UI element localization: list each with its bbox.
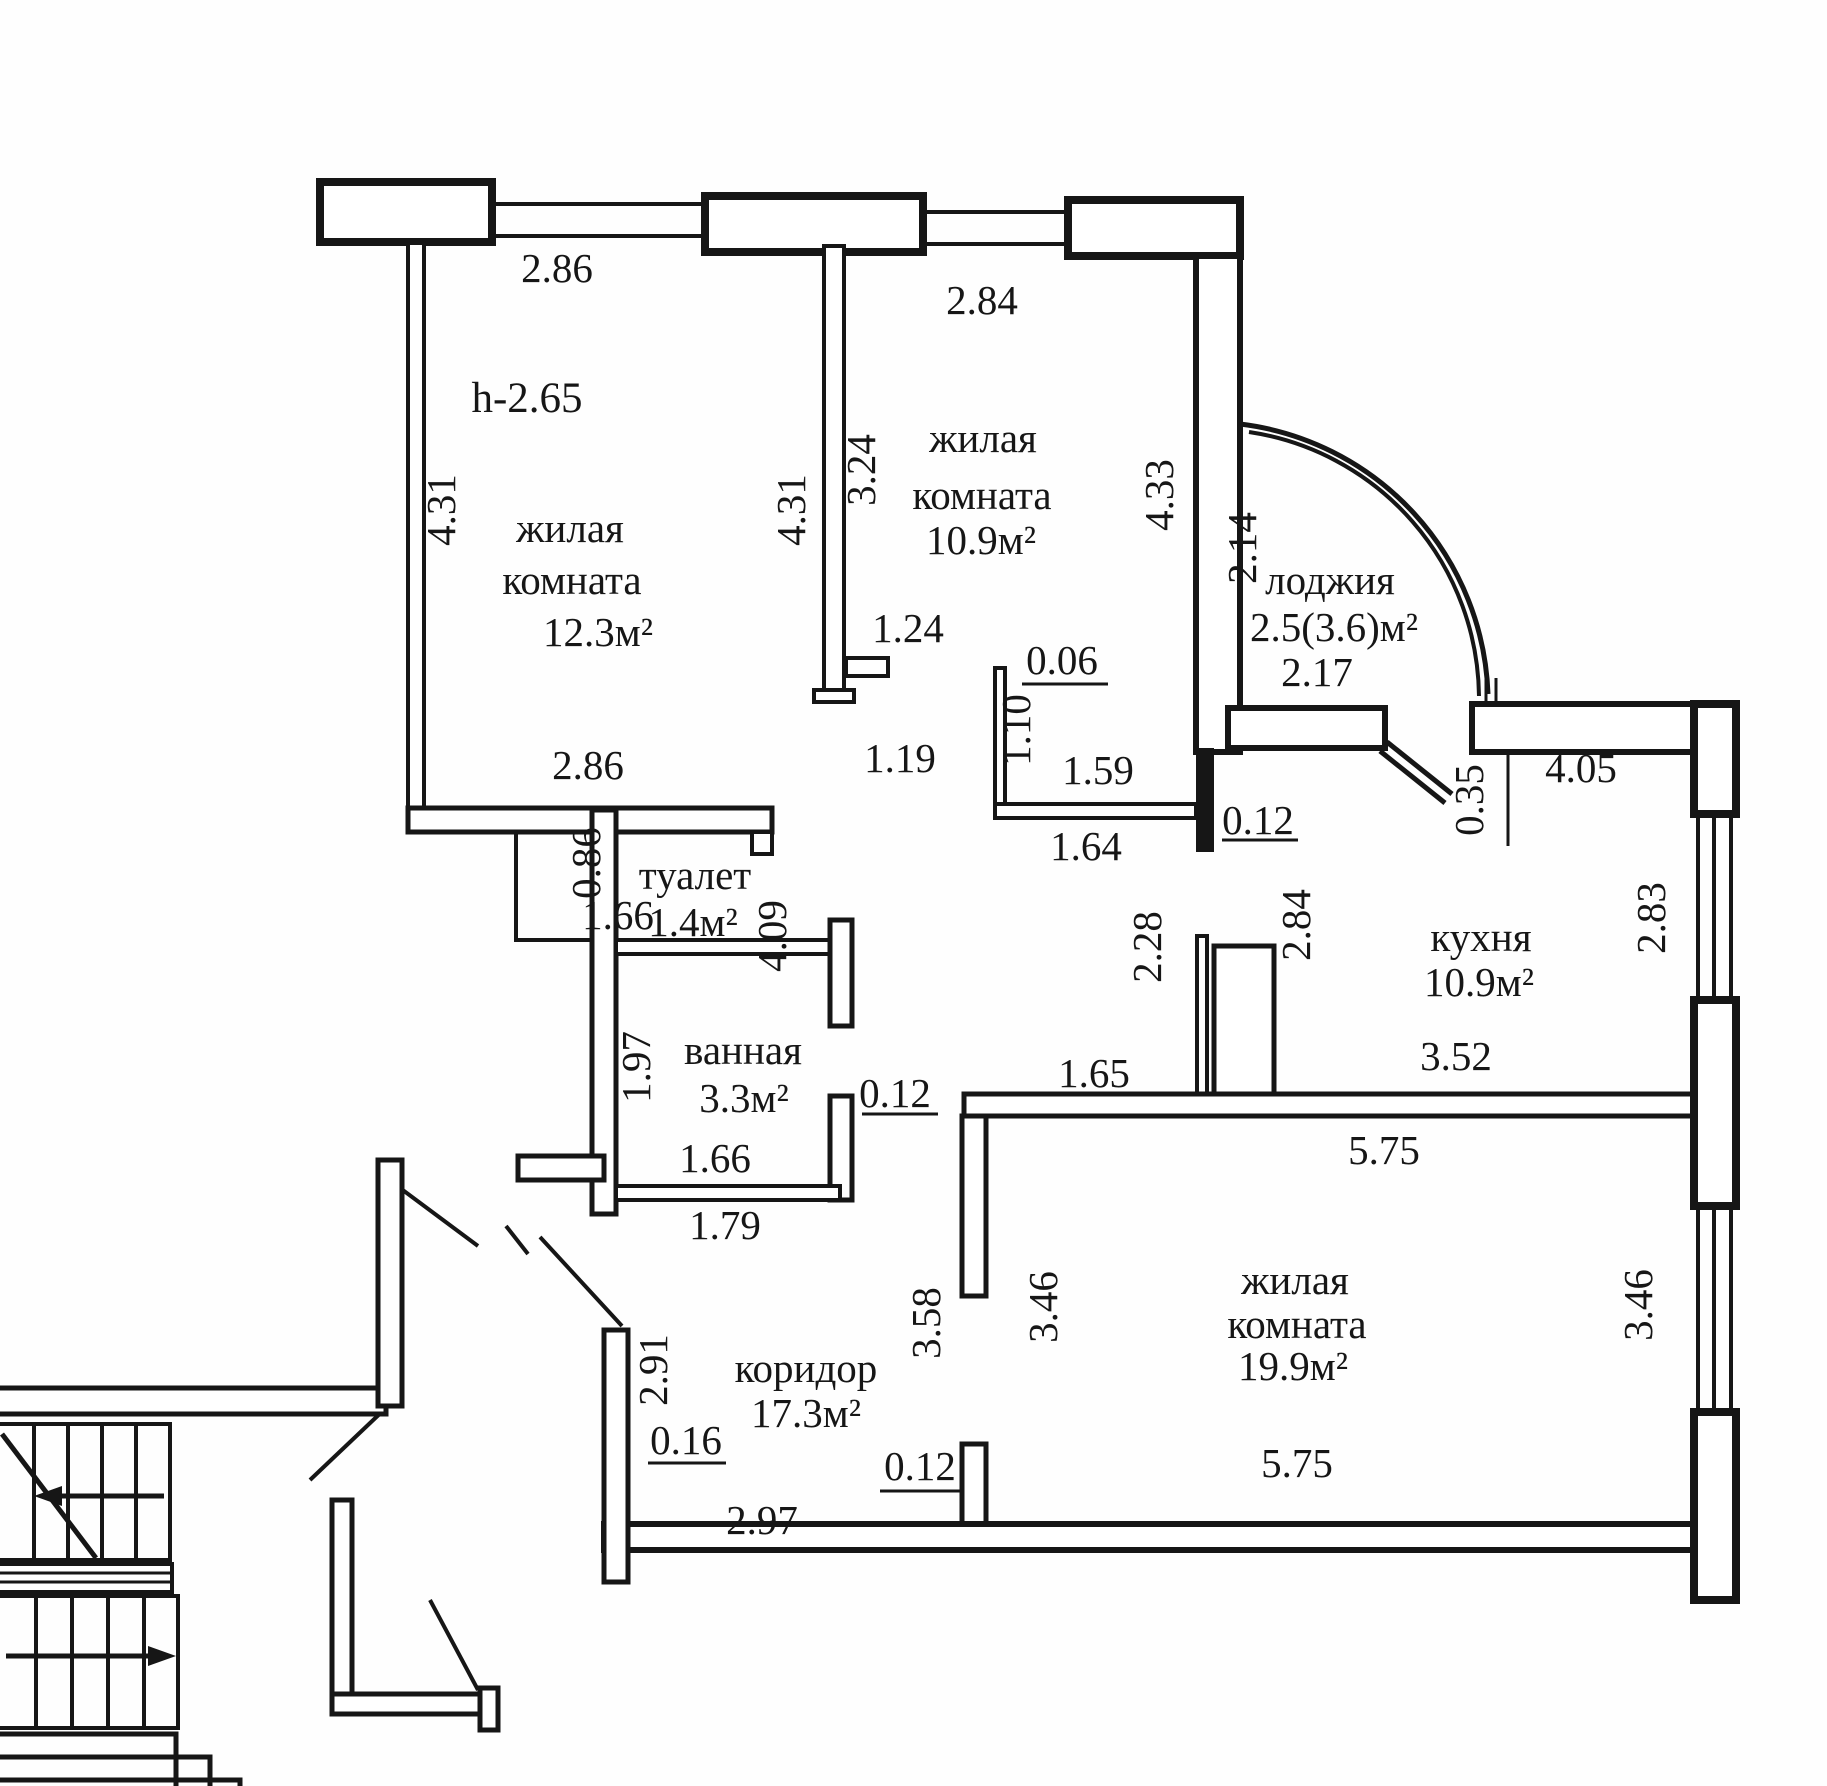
dim-kitchen-165: 1.65 [1058, 1050, 1130, 1096]
room-living2-area: 10.9м² [926, 517, 1036, 563]
wall-cap [814, 690, 854, 702]
dim-nook-012: 0.12 [1222, 797, 1294, 843]
dim-bath-166: 1.66 [679, 1135, 751, 1181]
dim-kitchen-352: 3.52 [1420, 1033, 1492, 1079]
dim-top-window2: 2.84 [946, 277, 1018, 323]
floor-plan-canvas: h-2.65 жилая комната 12.3м² жилая комнат… [0, 0, 1827, 1786]
room-corridor-area: 17.3м² [751, 1390, 861, 1436]
dim-toilet-086: 0.86 [563, 827, 609, 899]
wall-line [0, 1780, 240, 1786]
wall [1196, 256, 1240, 752]
room-living2-name1: жилая [928, 415, 1037, 461]
dim-corridor-012: 0.12 [884, 1443, 956, 1489]
dim-bath-197: 1.97 [613, 1031, 659, 1103]
loggia-door-leaf [1387, 742, 1452, 794]
dim-kitchen-405: 4.05 [1545, 745, 1617, 791]
room-corridor-name: коридор [735, 1345, 878, 1391]
dim-corridor-358: 3.58 [903, 1287, 949, 1359]
vent-shaft [1214, 946, 1274, 1098]
dim-living2-left: 3.24 [838, 434, 884, 506]
dim-living1-right: 4.31 [768, 474, 814, 546]
dim-kitchen-035: 0.35 [1446, 764, 1492, 836]
wall [604, 1330, 628, 1582]
dim-kitchen-228: 2.28 [1124, 911, 1170, 983]
entry-door-swing [540, 1237, 622, 1326]
door-jamb [480, 1688, 498, 1730]
dim-kitchen-283: 2.83 [1628, 882, 1674, 954]
dim-living2-right: 4.33 [1136, 459, 1182, 531]
dim-living3-left: 3.46 [1020, 1271, 1066, 1343]
door-swing [310, 1406, 388, 1480]
door-swing [430, 1600, 478, 1690]
room-toilet-name: туалет [639, 852, 752, 898]
dim-nook-006: 0.06 [1026, 637, 1098, 683]
room-living3-area: 19.9м² [1238, 1343, 1348, 1389]
wall-tick [846, 658, 888, 676]
wall-pier [1694, 1000, 1736, 1206]
dim-door-119: 1.19 [864, 735, 936, 781]
wall [0, 1388, 386, 1414]
room-living3-name1: жилая [1240, 1257, 1349, 1303]
room-bathroom-name: ванная [684, 1027, 802, 1073]
wall-stub [962, 1444, 986, 1528]
room-living2-name2: комната [912, 472, 1051, 518]
wall-thin [1197, 936, 1207, 1098]
wall [964, 1094, 1697, 1116]
dim-living3-right: 3.46 [1615, 1269, 1661, 1341]
dim-living3-top: 5.75 [1348, 1127, 1420, 1173]
dim-toilet-409: 4.09 [749, 900, 795, 972]
dim-partition-124: 1.24 [872, 605, 944, 651]
wall [1228, 708, 1385, 748]
wall-pier [1694, 1412, 1736, 1600]
dim-loggia-side: 2.14 [1219, 512, 1265, 584]
wall-pier [320, 182, 492, 242]
dim-nook-159: 1.59 [1062, 747, 1134, 793]
room-living3-name2: комната [1227, 1301, 1366, 1347]
wall [378, 1160, 402, 1406]
stair-landing [0, 1564, 172, 1592]
door-swing [506, 1226, 528, 1254]
room-bathroom-area: 3.3м² [699, 1075, 789, 1121]
ceiling-height-label: h-2.65 [471, 375, 582, 422]
stair-arrow-head [34, 1486, 62, 1506]
room-kitchen-area: 10.9м² [1424, 959, 1534, 1005]
dim-corridor-291: 2.91 [630, 1334, 676, 1406]
floor-plan-page: h-2.65 жилая комната 12.3м² жилая комнат… [0, 0, 1827, 1786]
stairwell [0, 1160, 498, 1786]
wall [332, 1694, 484, 1714]
wall-corner [1694, 704, 1736, 814]
dim-corridor-016: 0.16 [650, 1417, 722, 1463]
wall [616, 1186, 840, 1200]
room-living1-name2: комната [502, 557, 641, 603]
room-kitchen-name: кухня [1430, 914, 1531, 960]
room-living1-area: 12.3м² [543, 609, 653, 655]
wall [962, 1116, 986, 1296]
wall-stub [830, 920, 852, 1026]
dim-living1-left: 4.31 [418, 474, 464, 546]
door-swing [400, 1188, 478, 1246]
dim-living1-bottom: 2.86 [552, 742, 624, 788]
stair-arrow-head [148, 1646, 176, 1666]
wall-pier [705, 196, 923, 252]
wall-thin [995, 804, 1196, 818]
room-living1-name1: жилая [515, 505, 624, 551]
dim-nook-164: 1.64 [1050, 823, 1122, 869]
dim-nook-110: 1.10 [993, 694, 1039, 766]
dim-top-window1: 2.86 [521, 245, 593, 291]
dim-living3-bottom: 5.75 [1261, 1440, 1333, 1486]
room-loggia-name: лоджия [1265, 557, 1395, 603]
loggia-door-leaf [1380, 751, 1445, 803]
dim-corridor-297: 2.97 [726, 1497, 798, 1543]
wall-stub [752, 832, 772, 854]
dim-bath-179: 1.79 [689, 1202, 761, 1248]
wall [332, 1500, 352, 1706]
dim-bath-012: 0.12 [859, 1070, 931, 1116]
wall-corner [1068, 200, 1240, 256]
wall-tick [518, 1156, 604, 1180]
dim-kitchen-284: 2.84 [1273, 889, 1319, 961]
room-loggia-area: 2.5(3.6)м² [1250, 604, 1418, 650]
wall-solid [1196, 748, 1214, 852]
room-toilet-area: 1.4м² [648, 899, 738, 945]
room-loggia-width: 2.17 [1281, 649, 1353, 695]
